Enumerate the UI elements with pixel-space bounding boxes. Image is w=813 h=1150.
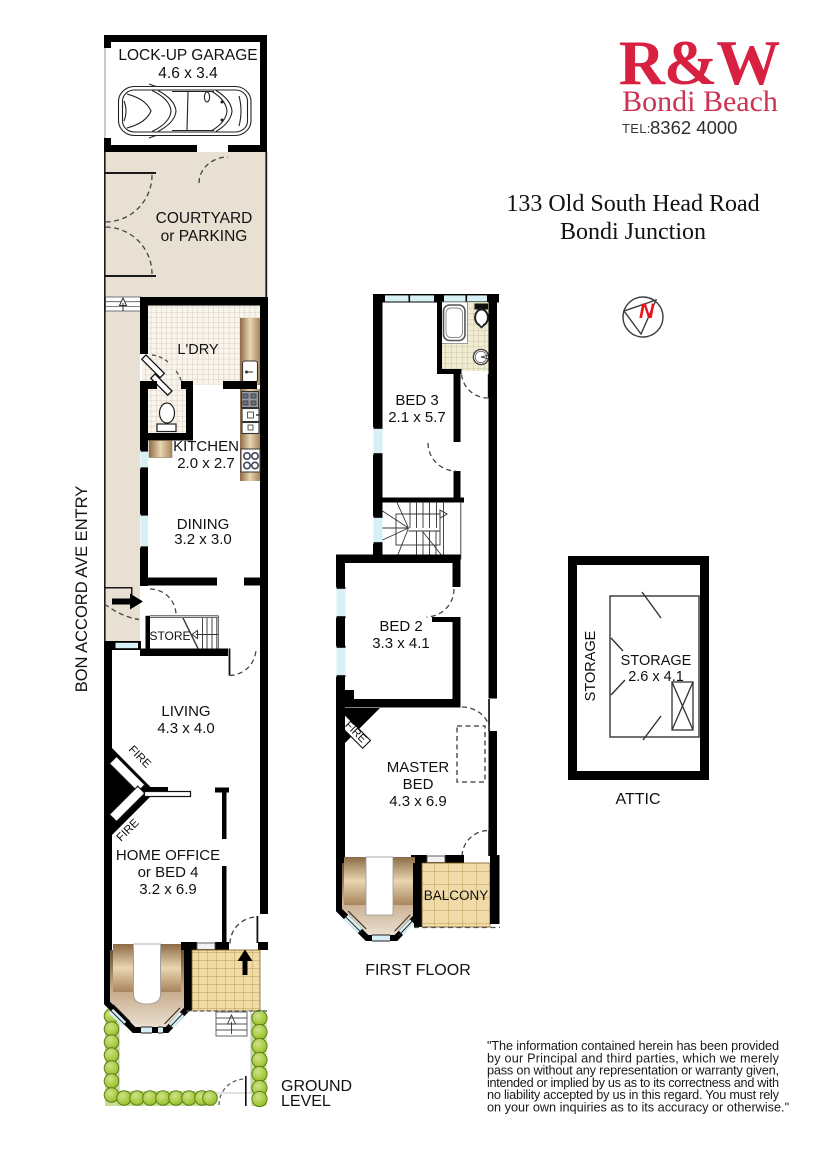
svg-text:on your own inquiries as to it: on your own inquiries as to its accuracy…: [487, 1101, 789, 1115]
svg-text:LIVING: LIVING: [161, 703, 210, 720]
svg-text:N: N: [639, 300, 655, 323]
svg-text:8362 4000: 8362 4000: [650, 117, 737, 138]
svg-text:Bondi Junction: Bondi Junction: [560, 219, 706, 245]
svg-text:L'DRY: L'DRY: [177, 342, 219, 358]
svg-text:2.0 x 2.7: 2.0 x 2.7: [177, 455, 235, 472]
svg-text:2.1 x 5.7: 2.1 x 5.7: [388, 409, 446, 426]
svg-text:4.3 x 4.0: 4.3 x 4.0: [157, 720, 215, 737]
svg-text:or PARKING: or PARKING: [161, 228, 248, 245]
svg-text:MASTER: MASTER: [387, 759, 450, 776]
svg-text:BED 3: BED 3: [395, 392, 438, 409]
svg-text:STORAGE: STORAGE: [583, 630, 599, 701]
svg-text:ATTIC: ATTIC: [615, 791, 660, 808]
svg-text:3.3 x 4.1: 3.3 x 4.1: [372, 635, 430, 652]
svg-text:COURTYARD: COURTYARD: [156, 210, 253, 227]
svg-text:STORAGE: STORAGE: [621, 653, 692, 669]
svg-text:BALCONY: BALCONY: [424, 888, 489, 903]
svg-text:4.3 x 6.9: 4.3 x 6.9: [389, 793, 447, 810]
svg-text:BED: BED: [403, 776, 434, 793]
svg-text:STORE: STORE: [149, 629, 190, 643]
svg-text:133 Old South Head Road: 133 Old South Head Road: [506, 191, 759, 217]
svg-text:3.2 x 6.9: 3.2 x 6.9: [139, 881, 197, 898]
svg-text:3.2 x 3.0: 3.2 x 3.0: [174, 531, 232, 548]
svg-text:2.6 x 4.1: 2.6 x 4.1: [628, 669, 684, 685]
svg-text:BED 2: BED 2: [379, 618, 422, 635]
svg-text:FIRST FLOOR: FIRST FLOOR: [365, 962, 471, 979]
svg-text:LEVEL: LEVEL: [281, 1093, 331, 1110]
svg-text:LOCK-UP GARAGE: LOCK-UP GARAGE: [118, 47, 257, 64]
svg-text:BON ACCORD AVE ENTRY: BON ACCORD AVE ENTRY: [73, 486, 91, 693]
svg-text:TEL:: TEL:: [622, 121, 651, 136]
svg-text:4.6 x 3.4: 4.6 x 3.4: [158, 65, 218, 82]
svg-text:HOME OFFICE: HOME OFFICE: [116, 847, 220, 864]
svg-text:or BED 4: or BED 4: [138, 864, 199, 881]
svg-text:Bondi Beach: Bondi Beach: [622, 85, 778, 118]
svg-text:KITCHEN: KITCHEN: [173, 438, 239, 455]
